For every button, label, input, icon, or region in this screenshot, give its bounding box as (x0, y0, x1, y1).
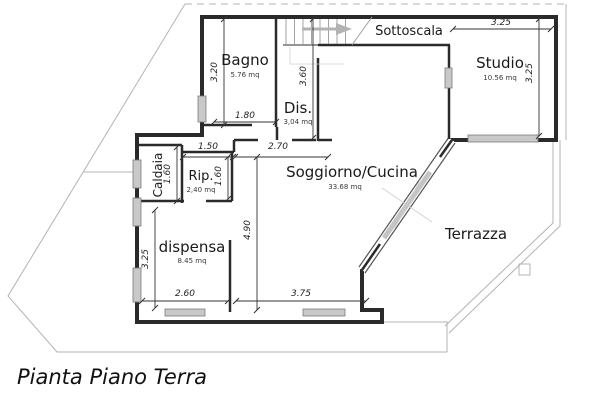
room-sottoscala: Sottoscala (375, 24, 443, 39)
room-soggiorno: Soggiorno/Cucina (286, 163, 418, 181)
room-dis-area: 3,04 mq (283, 118, 312, 126)
window-bagno (198, 96, 206, 122)
floor-plan-canvas: 3.20 1.80 3.60 3.25 3.25 1.50 2.70 1.60 … (0, 0, 600, 400)
dim-dispensa-height: 3.25 (141, 249, 151, 269)
room-rip: Rip. (188, 169, 213, 184)
dim-dispensa-width: 2.60 (175, 289, 195, 299)
terrace-column (519, 264, 530, 275)
room-caldaia: Caldaia (151, 153, 165, 198)
dim-bagno-width: 1.80 (235, 111, 255, 121)
dim-rip-height: 1.60 (214, 166, 224, 186)
plan-title: Pianta Piano Terra (17, 365, 207, 389)
window-studio-left (445, 68, 452, 88)
dim-soggiorno-width: 3.75 (291, 289, 311, 299)
dim-bagno-height: 3.20 (210, 62, 220, 82)
room-rip-area: 2,40 mq (186, 186, 215, 194)
room-dis: Dis. (284, 99, 312, 117)
dim-soggiorno-height: 4.90 (243, 220, 253, 240)
dim-studio-width: 3.25 (491, 18, 511, 28)
room-dispensa-area: 8.45 mq (177, 257, 206, 265)
floor-plan-drawing: 3.20 1.80 3.60 3.25 3.25 1.50 2.70 1.60 … (0, 0, 600, 400)
dim-rip-width: 1.50 (198, 142, 218, 152)
room-bagno: Bagno (221, 51, 269, 69)
room-bagno-area: 5.76 mq (230, 71, 259, 79)
room-studio: Studio (476, 54, 524, 72)
room-terrazza: Terrazza (444, 225, 507, 243)
window-studio-bottom (468, 135, 538, 142)
dim-studio-height: 3.25 (525, 63, 535, 83)
dim-dis-height: 3.60 (299, 66, 309, 86)
room-studio-area: 10.56 mq (483, 74, 517, 82)
window-left-1 (133, 160, 141, 188)
room-soggiorno-area: 33.68 mq (328, 183, 362, 191)
dim-soggiorno-top-width: 2.70 (268, 142, 288, 152)
window-bottom-2 (303, 309, 345, 316)
window-bottom-1 (165, 309, 205, 316)
window-left-2 (133, 198, 141, 226)
room-dispensa: dispensa (159, 238, 226, 256)
window-left-3 (133, 268, 141, 302)
